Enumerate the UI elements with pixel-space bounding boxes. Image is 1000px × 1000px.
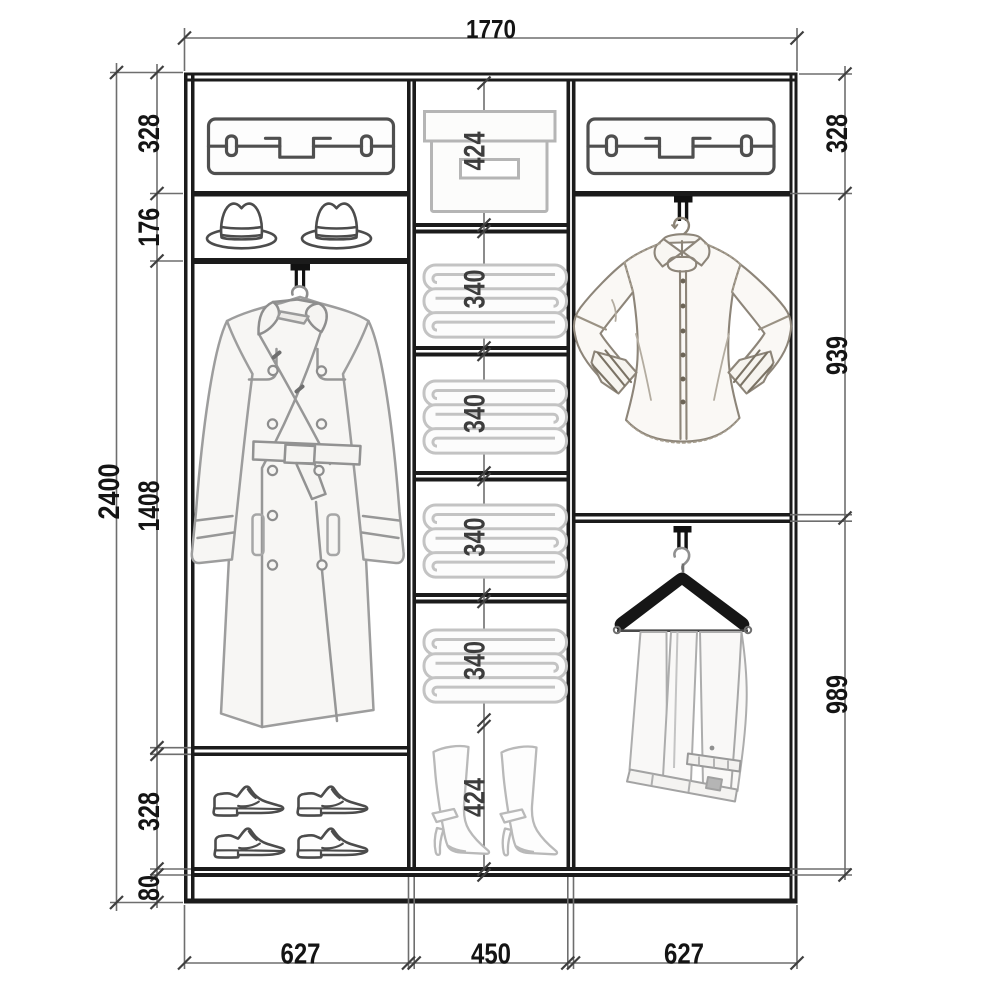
svg-text:1770: 1770: [466, 14, 516, 44]
svg-text:2400: 2400: [93, 464, 126, 520]
svg-text:80: 80: [133, 875, 166, 901]
svg-text:340: 340: [459, 394, 492, 433]
svg-text:328: 328: [133, 792, 166, 831]
svg-text:176: 176: [133, 208, 166, 247]
svg-text:328: 328: [821, 114, 854, 153]
svg-text:627: 627: [281, 939, 321, 971]
svg-text:989: 989: [821, 675, 854, 714]
svg-text:340: 340: [459, 641, 492, 680]
svg-text:627: 627: [664, 939, 704, 971]
svg-text:328: 328: [133, 114, 166, 153]
svg-text:1408: 1408: [133, 481, 166, 532]
svg-text:424: 424: [459, 131, 492, 170]
svg-text:424: 424: [459, 778, 492, 817]
svg-text:340: 340: [459, 270, 492, 309]
svg-text:939: 939: [821, 336, 854, 375]
svg-text:450: 450: [471, 939, 511, 971]
svg-text:340: 340: [459, 518, 492, 557]
